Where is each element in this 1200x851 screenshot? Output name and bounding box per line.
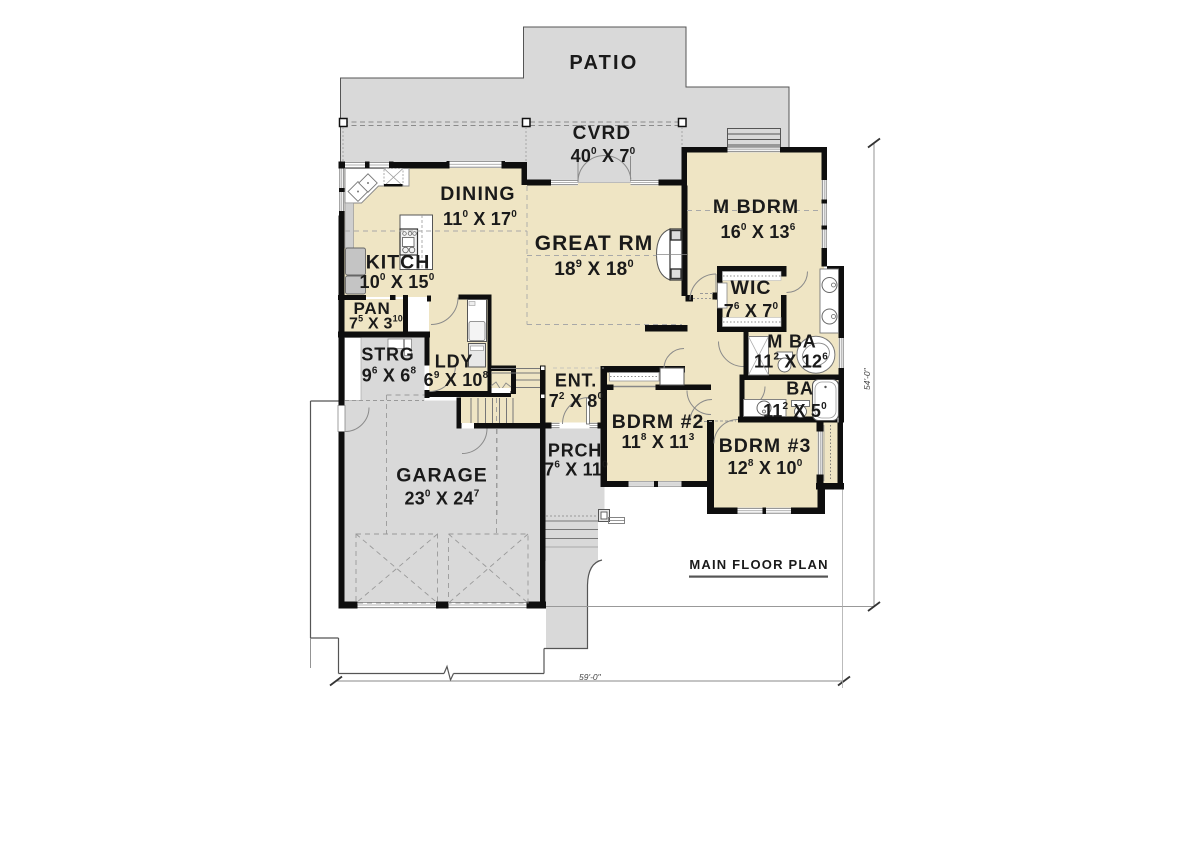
svg-text:ENT.: ENT. (555, 371, 597, 391)
svg-text:72 X 80: 72 X 80 (549, 391, 604, 411)
svg-text:400 X 70: 400 X 70 (571, 146, 636, 166)
svg-text:PATIO: PATIO (569, 52, 638, 74)
svg-text:KITCH: KITCH (366, 252, 431, 274)
svg-text:M BDRM: M BDRM (713, 196, 799, 218)
svg-text:69 X 108: 69 X 108 (424, 370, 489, 390)
svg-text:BDRM #3: BDRM #3 (719, 435, 812, 457)
svg-text:112 X 50: 112 X 50 (763, 401, 827, 421)
svg-text:112 X 126: 112 X 126 (754, 352, 828, 372)
svg-text:CVRD: CVRD (573, 123, 632, 144)
svg-text:76 X 110: 76 X 110 (544, 460, 608, 480)
svg-text:189 X 180: 189 X 180 (554, 258, 634, 280)
svg-text:STRG: STRG (361, 345, 414, 365)
svg-text:118 X 113: 118 X 113 (621, 432, 694, 452)
svg-text:76 X 70: 76 X 70 (724, 301, 779, 321)
svg-text:100 X 150: 100 X 150 (360, 272, 435, 292)
svg-text:54'-0": 54'-0" (862, 367, 872, 390)
svg-text:230 X 247: 230 X 247 (405, 489, 480, 509)
svg-text:DINING: DINING (440, 183, 515, 205)
svg-text:M BA: M BA (767, 332, 816, 352)
svg-text:LDY: LDY (435, 352, 473, 372)
svg-text:WIC: WIC (731, 277, 772, 299)
svg-text:BA: BA (786, 379, 814, 399)
svg-text:GARAGE: GARAGE (396, 465, 488, 487)
svg-text:96 X 68: 96 X 68 (362, 366, 417, 386)
svg-text:MAIN FLOOR PLAN: MAIN FLOOR PLAN (689, 557, 828, 572)
svg-text:59'-0": 59'-0" (579, 672, 602, 682)
svg-text:PRCH: PRCH (548, 441, 602, 461)
svg-text:128 X 100: 128 X 100 (728, 458, 803, 478)
svg-text:GREAT RM: GREAT RM (535, 232, 653, 255)
svg-text:110 X 170: 110 X 170 (443, 209, 517, 229)
svg-text:BDRM #2: BDRM #2 (612, 411, 705, 433)
svg-text:160 X 136: 160 X 136 (721, 222, 796, 242)
